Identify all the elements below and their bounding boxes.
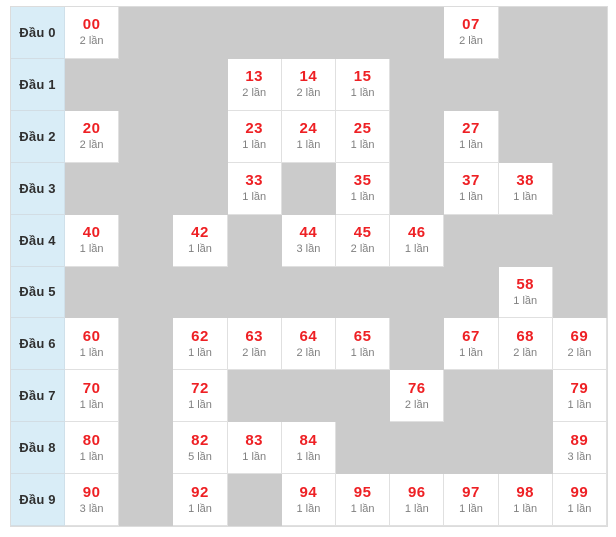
- empty-cell: [228, 474, 282, 526]
- row-label-dau-1: Đầu 1: [11, 59, 65, 111]
- number-value: 00: [83, 17, 101, 32]
- number-value: 72: [191, 381, 209, 396]
- number-cell-83: 831 lần: [228, 422, 282, 474]
- number-cell-84: 841 lần: [282, 422, 336, 474]
- number-value: 37: [462, 173, 480, 188]
- number-cell-44: 443 lần: [282, 215, 336, 267]
- number-cell-97: 971 lần: [444, 474, 498, 526]
- empty-cell: [390, 59, 444, 111]
- number-cell-14: 142 lần: [282, 59, 336, 111]
- empty-cell: [444, 215, 498, 267]
- count-label: 2 lần: [296, 348, 320, 359]
- row-label-dau-7: Đầu 7: [11, 370, 65, 422]
- empty-cell: [553, 215, 607, 267]
- number-cell-90: 903 lần: [65, 474, 119, 526]
- count-label: 3 lần: [296, 244, 320, 255]
- empty-cell: [390, 318, 444, 370]
- count-label: 1 lần: [405, 244, 429, 255]
- empty-cell: [228, 370, 282, 422]
- empty-cell: [228, 267, 282, 319]
- empty-cell: [444, 267, 498, 319]
- number-cell-27: 271 lần: [444, 111, 498, 163]
- count-label: 1 lần: [80, 348, 104, 359]
- empty-cell: [228, 7, 282, 59]
- number-cell-89: 893 lần: [553, 422, 607, 474]
- count-label: 1 lần: [296, 140, 320, 151]
- count-label: 2 lần: [405, 400, 429, 411]
- empty-cell: [119, 215, 173, 267]
- count-label: 3 lần: [80, 504, 104, 515]
- number-value: 27: [462, 121, 480, 136]
- count-label: 2 lần: [567, 348, 591, 359]
- number-cell-20: 202 lần: [65, 111, 119, 163]
- empty-cell: [119, 163, 173, 215]
- count-label: 1 lần: [80, 400, 104, 411]
- number-value: 99: [571, 485, 589, 500]
- number-value: 76: [408, 381, 426, 396]
- empty-cell: [390, 422, 444, 474]
- number-cell-13: 132 lần: [228, 59, 282, 111]
- count-label: 1 lần: [351, 192, 375, 203]
- number-cell-33: 331 lần: [228, 163, 282, 215]
- empty-cell: [499, 422, 553, 474]
- number-cell-70: 701 lần: [65, 370, 119, 422]
- count-label: 2 lần: [80, 36, 104, 47]
- number-value: 24: [300, 121, 318, 136]
- empty-cell: [173, 267, 227, 319]
- count-label: 1 lần: [242, 452, 266, 463]
- empty-cell: [336, 267, 390, 319]
- number-cell-96: 961 lần: [390, 474, 444, 526]
- number-value: 97: [462, 485, 480, 500]
- number-value: 63: [245, 329, 263, 344]
- empty-cell: [228, 215, 282, 267]
- number-cell-23: 231 lần: [228, 111, 282, 163]
- empty-cell: [553, 111, 607, 163]
- empty-cell: [336, 422, 390, 474]
- number-value: 70: [83, 381, 101, 396]
- number-cell-63: 632 lần: [228, 318, 282, 370]
- count-label: 1 lần: [351, 88, 375, 99]
- empty-cell: [499, 111, 553, 163]
- count-label: 1 lần: [459, 140, 483, 151]
- empty-cell: [173, 59, 227, 111]
- empty-cell: [336, 370, 390, 422]
- number-value: 96: [408, 485, 426, 500]
- number-value: 83: [245, 433, 263, 448]
- number-value: 40: [83, 225, 101, 240]
- number-cell-15: 151 lần: [336, 59, 390, 111]
- empty-cell: [65, 59, 119, 111]
- row-label-dau-5: Đầu 5: [11, 267, 65, 319]
- empty-cell: [119, 422, 173, 474]
- empty-cell: [282, 267, 336, 319]
- empty-cell: [119, 474, 173, 526]
- number-value: 89: [571, 433, 589, 448]
- number-cell-92: 921 lần: [173, 474, 227, 526]
- number-cell-76: 762 lần: [390, 370, 444, 422]
- row-label-dau-6: Đầu 6: [11, 318, 65, 370]
- empty-cell: [119, 370, 173, 422]
- number-value: 62: [191, 329, 209, 344]
- count-label: 1 lần: [459, 192, 483, 203]
- empty-cell: [390, 267, 444, 319]
- number-cell-80: 801 lần: [65, 422, 119, 474]
- count-label: 1 lần: [351, 348, 375, 359]
- number-cell-67: 671 lần: [444, 318, 498, 370]
- count-label: 2 lần: [80, 140, 104, 151]
- number-value: 44: [300, 225, 318, 240]
- number-value: 94: [300, 485, 318, 500]
- empty-cell: [553, 267, 607, 319]
- number-value: 98: [516, 485, 534, 500]
- empty-cell: [336, 7, 390, 59]
- row-label-dau-4: Đầu 4: [11, 215, 65, 267]
- count-label: 1 lần: [567, 400, 591, 411]
- empty-cell: [65, 163, 119, 215]
- number-cell-68: 682 lần: [499, 318, 553, 370]
- number-cell-25: 251 lần: [336, 111, 390, 163]
- count-label: 5 lần: [188, 452, 212, 463]
- number-value: 65: [354, 329, 372, 344]
- count-label: 3 lần: [567, 452, 591, 463]
- lottery-head-digit-frequency-table: Đầu 0002 lần072 lầnĐầu 1132 lần142 lần15…: [10, 6, 608, 527]
- empty-cell: [444, 59, 498, 111]
- count-label: 1 lần: [567, 504, 591, 515]
- number-cell-60: 601 lần: [65, 318, 119, 370]
- number-value: 84: [300, 433, 318, 448]
- empty-cell: [119, 111, 173, 163]
- number-value: 23: [245, 121, 263, 136]
- number-value: 20: [83, 121, 101, 136]
- count-label: 1 lần: [513, 296, 537, 307]
- number-value: 82: [191, 433, 209, 448]
- number-value: 69: [571, 329, 589, 344]
- count-label: 1 lần: [242, 192, 266, 203]
- row-label-dau-9: Đầu 9: [11, 474, 65, 526]
- number-value: 13: [245, 69, 263, 84]
- number-cell-98: 981 lần: [499, 474, 553, 526]
- number-value: 92: [191, 485, 209, 500]
- number-value: 07: [462, 17, 480, 32]
- count-label: 2 lần: [459, 36, 483, 47]
- empty-cell: [119, 59, 173, 111]
- count-label: 1 lần: [459, 348, 483, 359]
- count-label: 1 lần: [188, 348, 212, 359]
- number-cell-35: 351 lần: [336, 163, 390, 215]
- empty-cell: [553, 163, 607, 215]
- empty-cell: [390, 163, 444, 215]
- count-label: 1 lần: [459, 504, 483, 515]
- empty-cell: [444, 370, 498, 422]
- empty-cell: [499, 370, 553, 422]
- number-value: 80: [83, 433, 101, 448]
- number-cell-42: 421 lần: [173, 215, 227, 267]
- number-cell-58: 581 lần: [499, 267, 553, 319]
- number-value: 58: [516, 277, 534, 292]
- number-value: 15: [354, 69, 372, 84]
- empty-cell: [499, 59, 553, 111]
- number-cell-95: 951 lần: [336, 474, 390, 526]
- number-value: 33: [245, 173, 263, 188]
- count-label: 1 lần: [296, 452, 320, 463]
- empty-cell: [282, 163, 336, 215]
- number-cell-38: 381 lần: [499, 163, 553, 215]
- number-value: 79: [571, 381, 589, 396]
- number-cell-82: 825 lần: [173, 422, 227, 474]
- count-label: 1 lần: [513, 504, 537, 515]
- number-value: 45: [354, 225, 372, 240]
- count-label: 2 lần: [296, 88, 320, 99]
- empty-cell: [499, 7, 553, 59]
- count-label: 2 lần: [242, 88, 266, 99]
- count-label: 1 lần: [296, 504, 320, 515]
- empty-cell: [444, 422, 498, 474]
- number-value: 90: [83, 485, 101, 500]
- empty-cell: [173, 111, 227, 163]
- count-label: 1 lần: [351, 140, 375, 151]
- count-label: 1 lần: [242, 140, 266, 151]
- empty-cell: [553, 7, 607, 59]
- number-cell-24: 241 lần: [282, 111, 336, 163]
- number-cell-69: 692 lần: [553, 318, 607, 370]
- number-cell-72: 721 lần: [173, 370, 227, 422]
- number-cell-62: 621 lần: [173, 318, 227, 370]
- number-value: 38: [516, 173, 534, 188]
- number-cell-40: 401 lần: [65, 215, 119, 267]
- count-label: 1 lần: [513, 192, 537, 203]
- count-label: 1 lần: [188, 244, 212, 255]
- row-label-dau-8: Đầu 8: [11, 422, 65, 474]
- row-label-dau-2: Đầu 2: [11, 111, 65, 163]
- number-value: 14: [300, 69, 318, 84]
- number-value: 64: [300, 329, 318, 344]
- number-value: 68: [516, 329, 534, 344]
- number-cell-79: 791 lần: [553, 370, 607, 422]
- count-label: 2 lần: [351, 244, 375, 255]
- empty-cell: [553, 59, 607, 111]
- row-label-dau-0: Đầu 0: [11, 7, 65, 59]
- number-value: 67: [462, 329, 480, 344]
- number-cell-94: 941 lần: [282, 474, 336, 526]
- number-cell-45: 452 lần: [336, 215, 390, 267]
- count-label: 1 lần: [80, 244, 104, 255]
- count-label: 1 lần: [188, 504, 212, 515]
- empty-cell: [499, 215, 553, 267]
- row-label-dau-3: Đầu 3: [11, 163, 65, 215]
- count-label: 2 lần: [513, 348, 537, 359]
- empty-cell: [390, 7, 444, 59]
- number-value: 25: [354, 121, 372, 136]
- count-label: 1 lần: [188, 400, 212, 411]
- number-cell-46: 461 lần: [390, 215, 444, 267]
- empty-cell: [173, 7, 227, 59]
- count-label: 1 lần: [351, 504, 375, 515]
- count-label: 1 lần: [405, 504, 429, 515]
- empty-cell: [65, 267, 119, 319]
- empty-cell: [173, 163, 227, 215]
- count-label: 2 lần: [242, 348, 266, 359]
- number-cell-00: 002 lần: [65, 7, 119, 59]
- empty-cell: [282, 7, 336, 59]
- number-cell-37: 371 lần: [444, 163, 498, 215]
- empty-cell: [282, 370, 336, 422]
- number-cell-99: 991 lần: [553, 474, 607, 526]
- number-cell-65: 651 lần: [336, 318, 390, 370]
- empty-cell: [390, 111, 444, 163]
- number-value: 42: [191, 225, 209, 240]
- empty-cell: [119, 267, 173, 319]
- empty-cell: [119, 7, 173, 59]
- number-cell-64: 642 lần: [282, 318, 336, 370]
- number-value: 35: [354, 173, 372, 188]
- empty-cell: [119, 318, 173, 370]
- number-value: 95: [354, 485, 372, 500]
- number-value: 60: [83, 329, 101, 344]
- count-label: 1 lần: [80, 452, 104, 463]
- number-cell-07: 072 lần: [444, 7, 498, 59]
- number-value: 46: [408, 225, 426, 240]
